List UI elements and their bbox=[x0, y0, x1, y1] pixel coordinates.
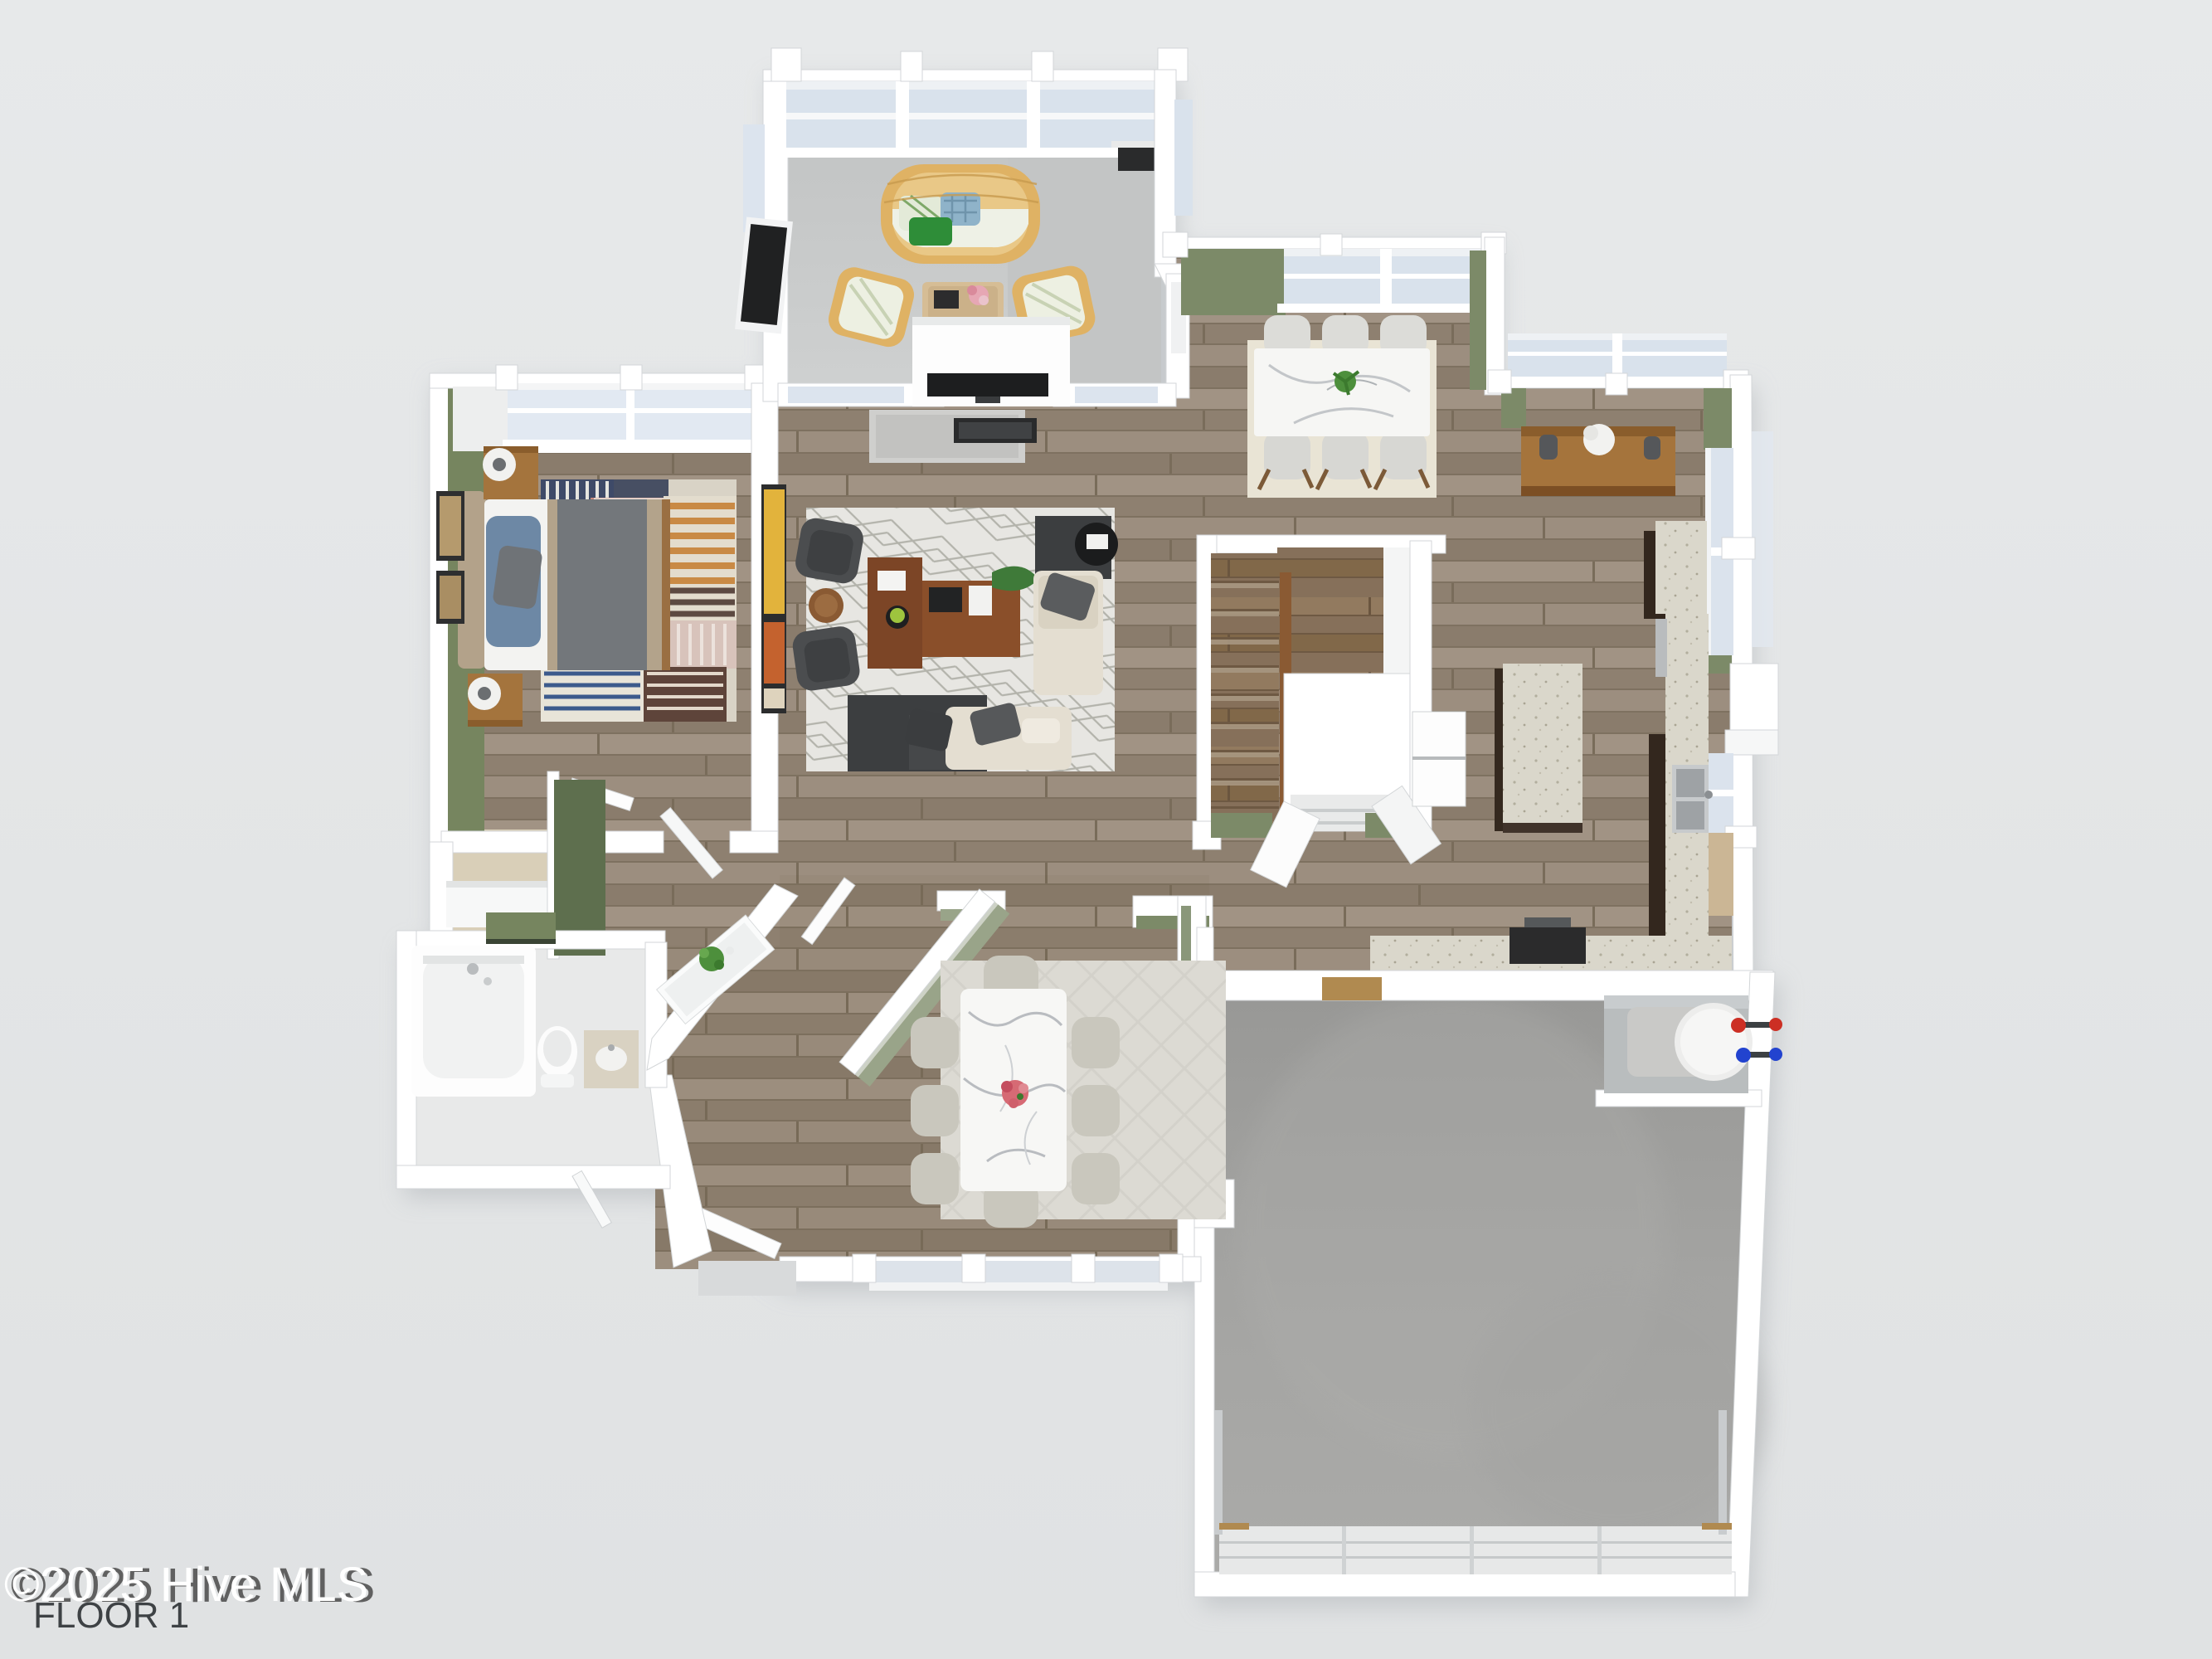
svg-text:FLOOR 1: FLOOR 1 bbox=[33, 1595, 189, 1636]
